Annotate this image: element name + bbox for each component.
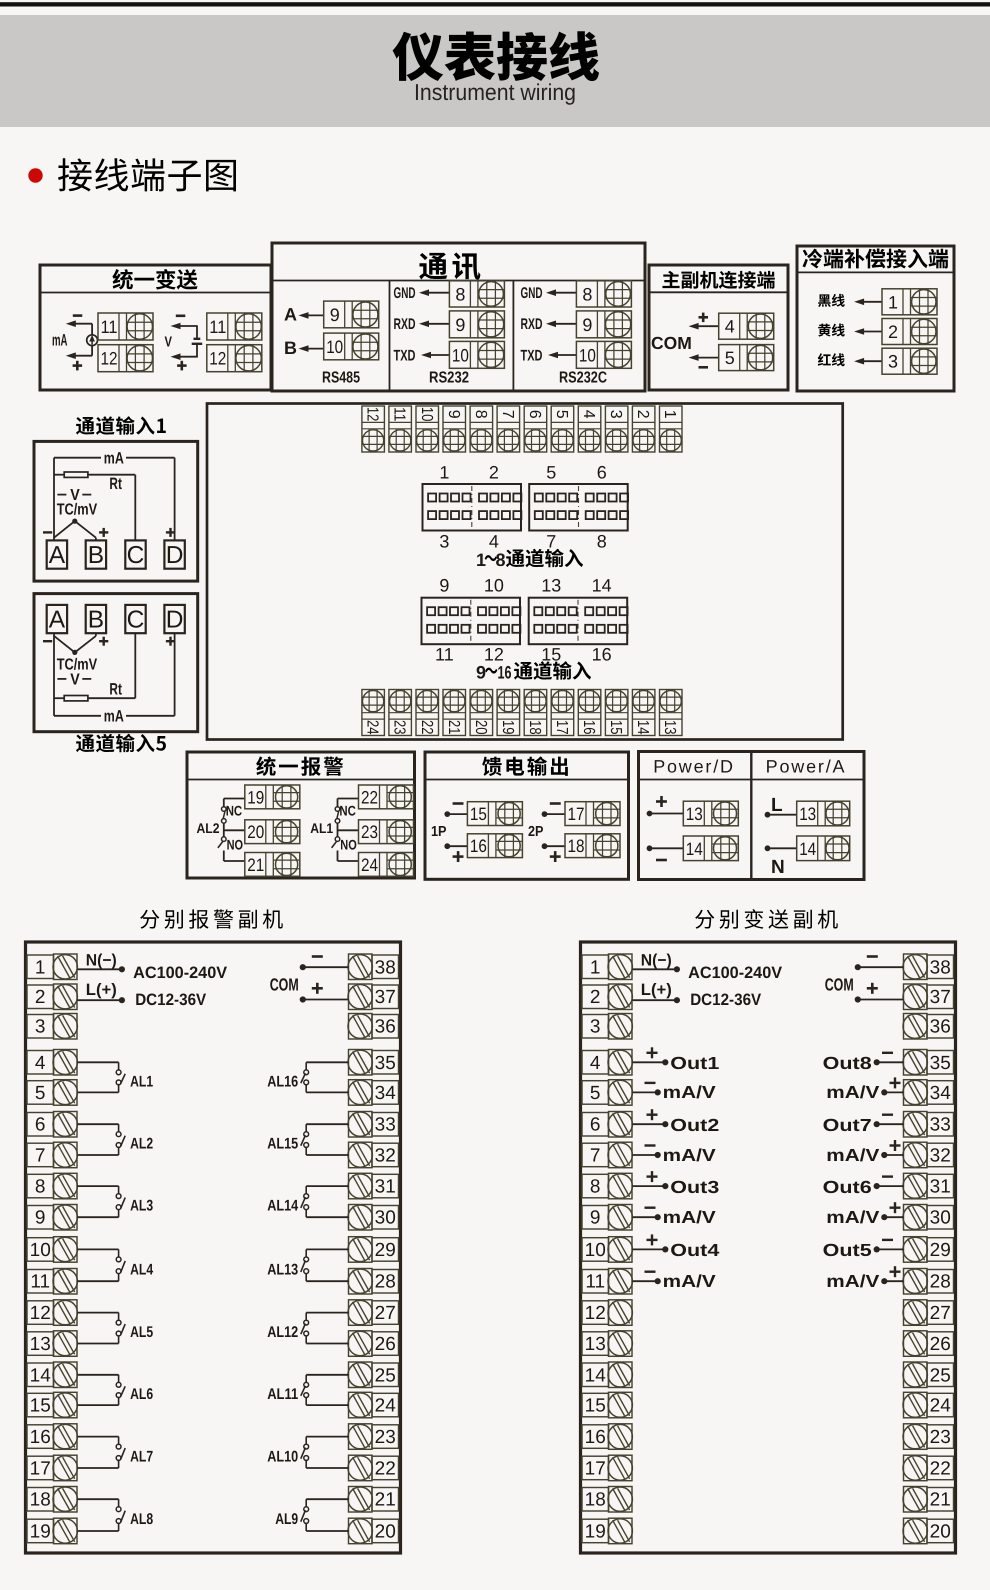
svg-text:Out5: Out5 — [823, 1240, 872, 1260]
svg-text:7: 7 — [546, 532, 556, 552]
svg-text:5: 5 — [725, 348, 735, 368]
svg-text:7: 7 — [590, 1146, 601, 1167]
svg-text:Out3: Out3 — [670, 1177, 719, 1197]
svg-text:AL8: AL8 — [130, 1511, 153, 1528]
svg-text:AL10: AL10 — [267, 1448, 298, 1465]
svg-text:L(+): L(+) — [86, 981, 117, 999]
svg-text:36: 36 — [375, 1017, 396, 1038]
svg-text:34: 34 — [375, 1083, 397, 1104]
svg-text:35: 35 — [375, 1053, 396, 1074]
svg-text:DC12-36V: DC12-36V — [135, 991, 206, 1009]
svg-text:AL11: AL11 — [267, 1386, 298, 1403]
svg-text:6: 6 — [35, 1115, 46, 1136]
svg-text:mA/V: mA/V — [826, 1207, 879, 1227]
svg-text:21: 21 — [375, 1490, 396, 1511]
svg-text:mA/V: mA/V — [826, 1145, 879, 1165]
svg-text:V: V — [165, 335, 173, 351]
svg-text:6: 6 — [526, 410, 543, 419]
svg-text:10: 10 — [30, 1240, 51, 1261]
svg-text:36: 36 — [930, 1017, 951, 1038]
svg-text:37: 37 — [930, 987, 951, 1008]
svg-text:31: 31 — [375, 1177, 396, 1198]
svg-text:AL1: AL1 — [130, 1073, 153, 1090]
svg-text:9: 9 — [476, 663, 486, 683]
svg-text:C: C — [127, 542, 145, 569]
svg-text:17: 17 — [30, 1459, 51, 1480]
svg-text:24: 24 — [375, 1396, 397, 1417]
svg-text:AL16: AL16 — [267, 1073, 298, 1090]
svg-text:N: N — [771, 857, 785, 878]
svg-text:20: 20 — [472, 720, 489, 735]
svg-text:19: 19 — [499, 720, 516, 735]
svg-text:30: 30 — [375, 1208, 396, 1229]
svg-text:18: 18 — [585, 1490, 606, 1511]
svg-text:33: 33 — [375, 1115, 396, 1136]
svg-text:4: 4 — [580, 410, 597, 419]
svg-text:17: 17 — [553, 720, 570, 735]
svg-text:11: 11 — [585, 1272, 605, 1293]
svg-text:16: 16 — [580, 720, 597, 735]
svg-text:L(+): L(+) — [641, 981, 672, 999]
svg-text:23: 23 — [375, 1427, 396, 1448]
svg-text:B: B — [88, 542, 104, 569]
svg-text:D: D — [166, 607, 184, 634]
svg-text:RXD: RXD — [521, 316, 543, 333]
svg-text:10: 10 — [452, 345, 469, 365]
svg-text:13: 13 — [30, 1334, 51, 1355]
svg-text:8: 8 — [597, 532, 607, 552]
svg-text:Out8: Out8 — [823, 1053, 872, 1073]
svg-text:9: 9 — [590, 1208, 601, 1229]
svg-text:3: 3 — [888, 352, 898, 372]
svg-text:21: 21 — [445, 720, 462, 735]
svg-text:3: 3 — [439, 532, 449, 552]
svg-text:RS485: RS485 — [322, 370, 360, 387]
svg-text:2: 2 — [634, 410, 651, 419]
svg-text:14: 14 — [592, 576, 612, 596]
svg-text:27: 27 — [375, 1303, 396, 1324]
svg-text:24: 24 — [364, 720, 381, 735]
svg-text:5: 5 — [590, 1083, 601, 1104]
svg-text:COM: COM — [825, 975, 854, 995]
svg-text:2: 2 — [590, 987, 601, 1008]
svg-text:11: 11 — [435, 645, 454, 665]
svg-text:9: 9 — [35, 1208, 46, 1229]
svg-text:15: 15 — [607, 720, 624, 735]
svg-text:AL7: AL7 — [130, 1448, 153, 1465]
svg-text:8: 8 — [582, 284, 592, 304]
svg-text:N(−): N(−) — [641, 951, 672, 969]
svg-text:13: 13 — [541, 576, 561, 596]
svg-text:mA: mA — [104, 450, 124, 468]
svg-text:28: 28 — [375, 1272, 396, 1293]
svg-text:1: 1 — [590, 957, 601, 978]
svg-text:14: 14 — [30, 1365, 52, 1386]
svg-text:GND: GND — [394, 285, 416, 302]
svg-text:AL5: AL5 — [130, 1324, 153, 1341]
svg-text:Power/A: Power/A — [766, 757, 847, 777]
svg-text:26: 26 — [375, 1334, 396, 1355]
svg-text:1: 1 — [888, 292, 898, 312]
svg-text:8: 8 — [590, 1177, 601, 1198]
svg-text:Rt: Rt — [109, 475, 122, 493]
svg-text:33: 33 — [930, 1115, 951, 1136]
svg-text:NO: NO — [227, 836, 244, 852]
svg-text:34: 34 — [930, 1083, 952, 1104]
svg-text:GND: GND — [521, 285, 543, 302]
svg-text:9: 9 — [455, 315, 465, 335]
svg-text:N(−): N(−) — [86, 951, 117, 969]
svg-text:Rt: Rt — [109, 681, 122, 699]
svg-text:10: 10 — [326, 337, 343, 357]
svg-text:RS232C: RS232C — [559, 370, 607, 387]
svg-text:21: 21 — [930, 1490, 951, 1511]
svg-text:B: B — [88, 607, 104, 634]
svg-text:mA/V: mA/V — [663, 1207, 716, 1227]
svg-text:A: A — [284, 305, 297, 325]
svg-text:21: 21 — [247, 855, 264, 875]
svg-text:3: 3 — [35, 1017, 46, 1038]
svg-text:12: 12 — [101, 349, 118, 369]
svg-text:12: 12 — [364, 407, 381, 422]
svg-text:TXD: TXD — [521, 347, 543, 364]
svg-text:19: 19 — [585, 1522, 606, 1543]
svg-text:Out4: Out4 — [670, 1240, 719, 1260]
svg-text:16: 16 — [585, 1427, 606, 1448]
svg-text:2P: 2P — [528, 824, 544, 840]
svg-text:16: 16 — [470, 836, 487, 856]
svg-text:20: 20 — [247, 822, 264, 842]
svg-text:17: 17 — [585, 1459, 606, 1480]
svg-text:23: 23 — [361, 822, 378, 842]
svg-text:7: 7 — [35, 1146, 46, 1167]
svg-text:A: A — [49, 607, 66, 634]
svg-text:C: C — [127, 607, 145, 634]
svg-text:AL4: AL4 — [130, 1261, 153, 1278]
svg-text:NO: NO — [340, 836, 357, 852]
svg-text:20: 20 — [930, 1522, 951, 1543]
svg-text:11: 11 — [30, 1272, 50, 1293]
svg-text:23: 23 — [391, 720, 408, 735]
svg-text:mA/V: mA/V — [663, 1082, 716, 1102]
svg-text:38: 38 — [375, 957, 396, 978]
svg-text:18: 18 — [526, 720, 543, 735]
svg-text:AL3: AL3 — [130, 1198, 153, 1215]
svg-text:16: 16 — [592, 645, 612, 665]
svg-text:16: 16 — [30, 1427, 51, 1448]
svg-text:AL13: AL13 — [267, 1261, 298, 1278]
svg-text:26: 26 — [930, 1334, 951, 1355]
svg-text:TXD: TXD — [394, 347, 416, 364]
svg-text:8: 8 — [472, 410, 489, 419]
svg-text:13: 13 — [661, 720, 678, 735]
svg-text:mA/V: mA/V — [663, 1145, 716, 1165]
svg-text:AL15: AL15 — [267, 1136, 298, 1153]
svg-text:A: A — [49, 542, 66, 569]
svg-text:1: 1 — [35, 957, 46, 978]
svg-text:32: 32 — [375, 1146, 396, 1167]
svg-text:5: 5 — [553, 410, 570, 419]
svg-text:1P: 1P — [431, 824, 447, 840]
svg-text:11: 11 — [391, 407, 408, 422]
svg-text:9: 9 — [330, 305, 340, 325]
svg-text:9: 9 — [445, 410, 462, 419]
svg-text:Power/D: Power/D — [653, 757, 735, 777]
svg-text:Out6: Out6 — [823, 1177, 872, 1197]
svg-text:31: 31 — [930, 1177, 951, 1198]
svg-text:B: B — [284, 338, 297, 358]
svg-text:24: 24 — [930, 1396, 952, 1417]
svg-text:14: 14 — [585, 1365, 607, 1386]
svg-text:7: 7 — [499, 410, 516, 419]
svg-text:25: 25 — [375, 1365, 396, 1386]
svg-text:25: 25 — [930, 1365, 951, 1386]
svg-text:32: 32 — [930, 1146, 951, 1167]
svg-text:1: 1 — [661, 410, 678, 419]
svg-text:4: 4 — [489, 532, 499, 552]
svg-text:12: 12 — [30, 1303, 51, 1324]
svg-text:mA/V: mA/V — [826, 1271, 879, 1291]
svg-text:3: 3 — [607, 410, 624, 419]
svg-text:mA/V: mA/V — [663, 1271, 716, 1291]
svg-text:D: D — [166, 542, 184, 569]
svg-text:Out7: Out7 — [823, 1115, 872, 1135]
svg-text:5: 5 — [35, 1083, 46, 1104]
svg-text:19: 19 — [30, 1522, 51, 1543]
svg-text:15: 15 — [585, 1396, 606, 1417]
svg-text:2: 2 — [888, 322, 898, 342]
svg-text:AC100-240V: AC100-240V — [688, 964, 782, 982]
svg-text:Out1: Out1 — [670, 1053, 719, 1073]
svg-text:4: 4 — [590, 1053, 601, 1074]
svg-text:AL6: AL6 — [130, 1386, 153, 1403]
svg-text:18: 18 — [30, 1490, 51, 1511]
svg-text:3: 3 — [590, 1017, 601, 1038]
svg-text:1: 1 — [476, 550, 486, 570]
svg-text:8: 8 — [35, 1177, 46, 1198]
svg-text:NC: NC — [339, 802, 356, 818]
svg-text:12: 12 — [585, 1303, 606, 1324]
svg-text:2: 2 — [35, 987, 46, 1008]
svg-text:V: V — [70, 672, 80, 689]
svg-text:COM: COM — [651, 333, 692, 353]
svg-text:AL2: AL2 — [197, 820, 220, 836]
svg-text:6: 6 — [597, 463, 607, 483]
svg-text:16: 16 — [498, 663, 512, 683]
svg-text:22: 22 — [361, 787, 378, 807]
svg-text:4: 4 — [725, 317, 735, 337]
svg-text:AC100-240V: AC100-240V — [133, 964, 227, 982]
svg-text:38: 38 — [930, 957, 951, 978]
svg-text:29: 29 — [375, 1240, 396, 1261]
svg-text:24: 24 — [361, 855, 378, 875]
svg-text:18: 18 — [568, 836, 585, 856]
svg-text:29: 29 — [930, 1240, 951, 1261]
svg-text:11: 11 — [209, 317, 226, 337]
svg-text:8: 8 — [455, 284, 465, 304]
svg-text:10: 10 — [579, 345, 596, 365]
svg-text:AL14: AL14 — [267, 1198, 298, 1215]
svg-text:AL2: AL2 — [130, 1136, 153, 1153]
svg-text:12: 12 — [209, 349, 226, 369]
svg-text:AL1: AL1 — [310, 820, 333, 836]
svg-text:13: 13 — [799, 804, 816, 824]
svg-text:13: 13 — [686, 804, 703, 824]
svg-text:AL12: AL12 — [267, 1324, 298, 1341]
svg-text:22: 22 — [930, 1459, 951, 1480]
svg-text:Instrument wiring: Instrument wiring — [414, 79, 576, 105]
svg-text:TC/mV: TC/mV — [57, 502, 98, 519]
svg-text:RS232: RS232 — [429, 370, 469, 387]
svg-text:NC: NC — [226, 802, 243, 818]
svg-text:23: 23 — [930, 1427, 951, 1448]
svg-text:27: 27 — [930, 1303, 951, 1324]
svg-text:5: 5 — [546, 463, 556, 483]
svg-text:15: 15 — [30, 1396, 51, 1417]
svg-text:22: 22 — [418, 720, 435, 735]
svg-text:Out2: Out2 — [670, 1115, 719, 1135]
svg-text:DC12-36V: DC12-36V — [690, 991, 761, 1009]
svg-text:12: 12 — [484, 645, 504, 665]
svg-text:2: 2 — [489, 463, 499, 483]
svg-text:mA: mA — [104, 707, 124, 725]
svg-text:10: 10 — [418, 407, 435, 422]
svg-text:28: 28 — [930, 1272, 951, 1293]
svg-text:14: 14 — [686, 839, 703, 859]
svg-text:22: 22 — [375, 1459, 396, 1480]
svg-text:13: 13 — [585, 1334, 606, 1355]
svg-text:L: L — [771, 795, 783, 816]
svg-text:37: 37 — [375, 987, 396, 1008]
svg-text:35: 35 — [930, 1053, 951, 1074]
svg-text:9: 9 — [439, 576, 449, 596]
svg-text:15: 15 — [541, 645, 561, 665]
svg-text:4: 4 — [35, 1053, 46, 1074]
svg-text:14: 14 — [634, 720, 651, 735]
svg-text:20: 20 — [375, 1522, 396, 1543]
svg-text:17: 17 — [568, 804, 585, 824]
svg-text:6: 6 — [590, 1115, 601, 1136]
svg-text:11: 11 — [101, 317, 118, 337]
svg-text:COM: COM — [270, 975, 299, 995]
svg-text:RXD: RXD — [394, 316, 416, 333]
svg-text:19: 19 — [247, 787, 264, 807]
svg-text:AL9: AL9 — [275, 1511, 298, 1528]
svg-text:15: 15 — [470, 804, 487, 824]
svg-text:mA/V: mA/V — [826, 1082, 879, 1102]
svg-text:mA: mA — [52, 332, 68, 350]
svg-text:8: 8 — [495, 550, 505, 570]
svg-text:30: 30 — [930, 1208, 951, 1229]
svg-text:10: 10 — [484, 576, 504, 596]
svg-text:9: 9 — [582, 315, 592, 335]
svg-text:1: 1 — [439, 463, 449, 483]
svg-text:10: 10 — [585, 1240, 606, 1261]
svg-text:14: 14 — [799, 839, 816, 859]
